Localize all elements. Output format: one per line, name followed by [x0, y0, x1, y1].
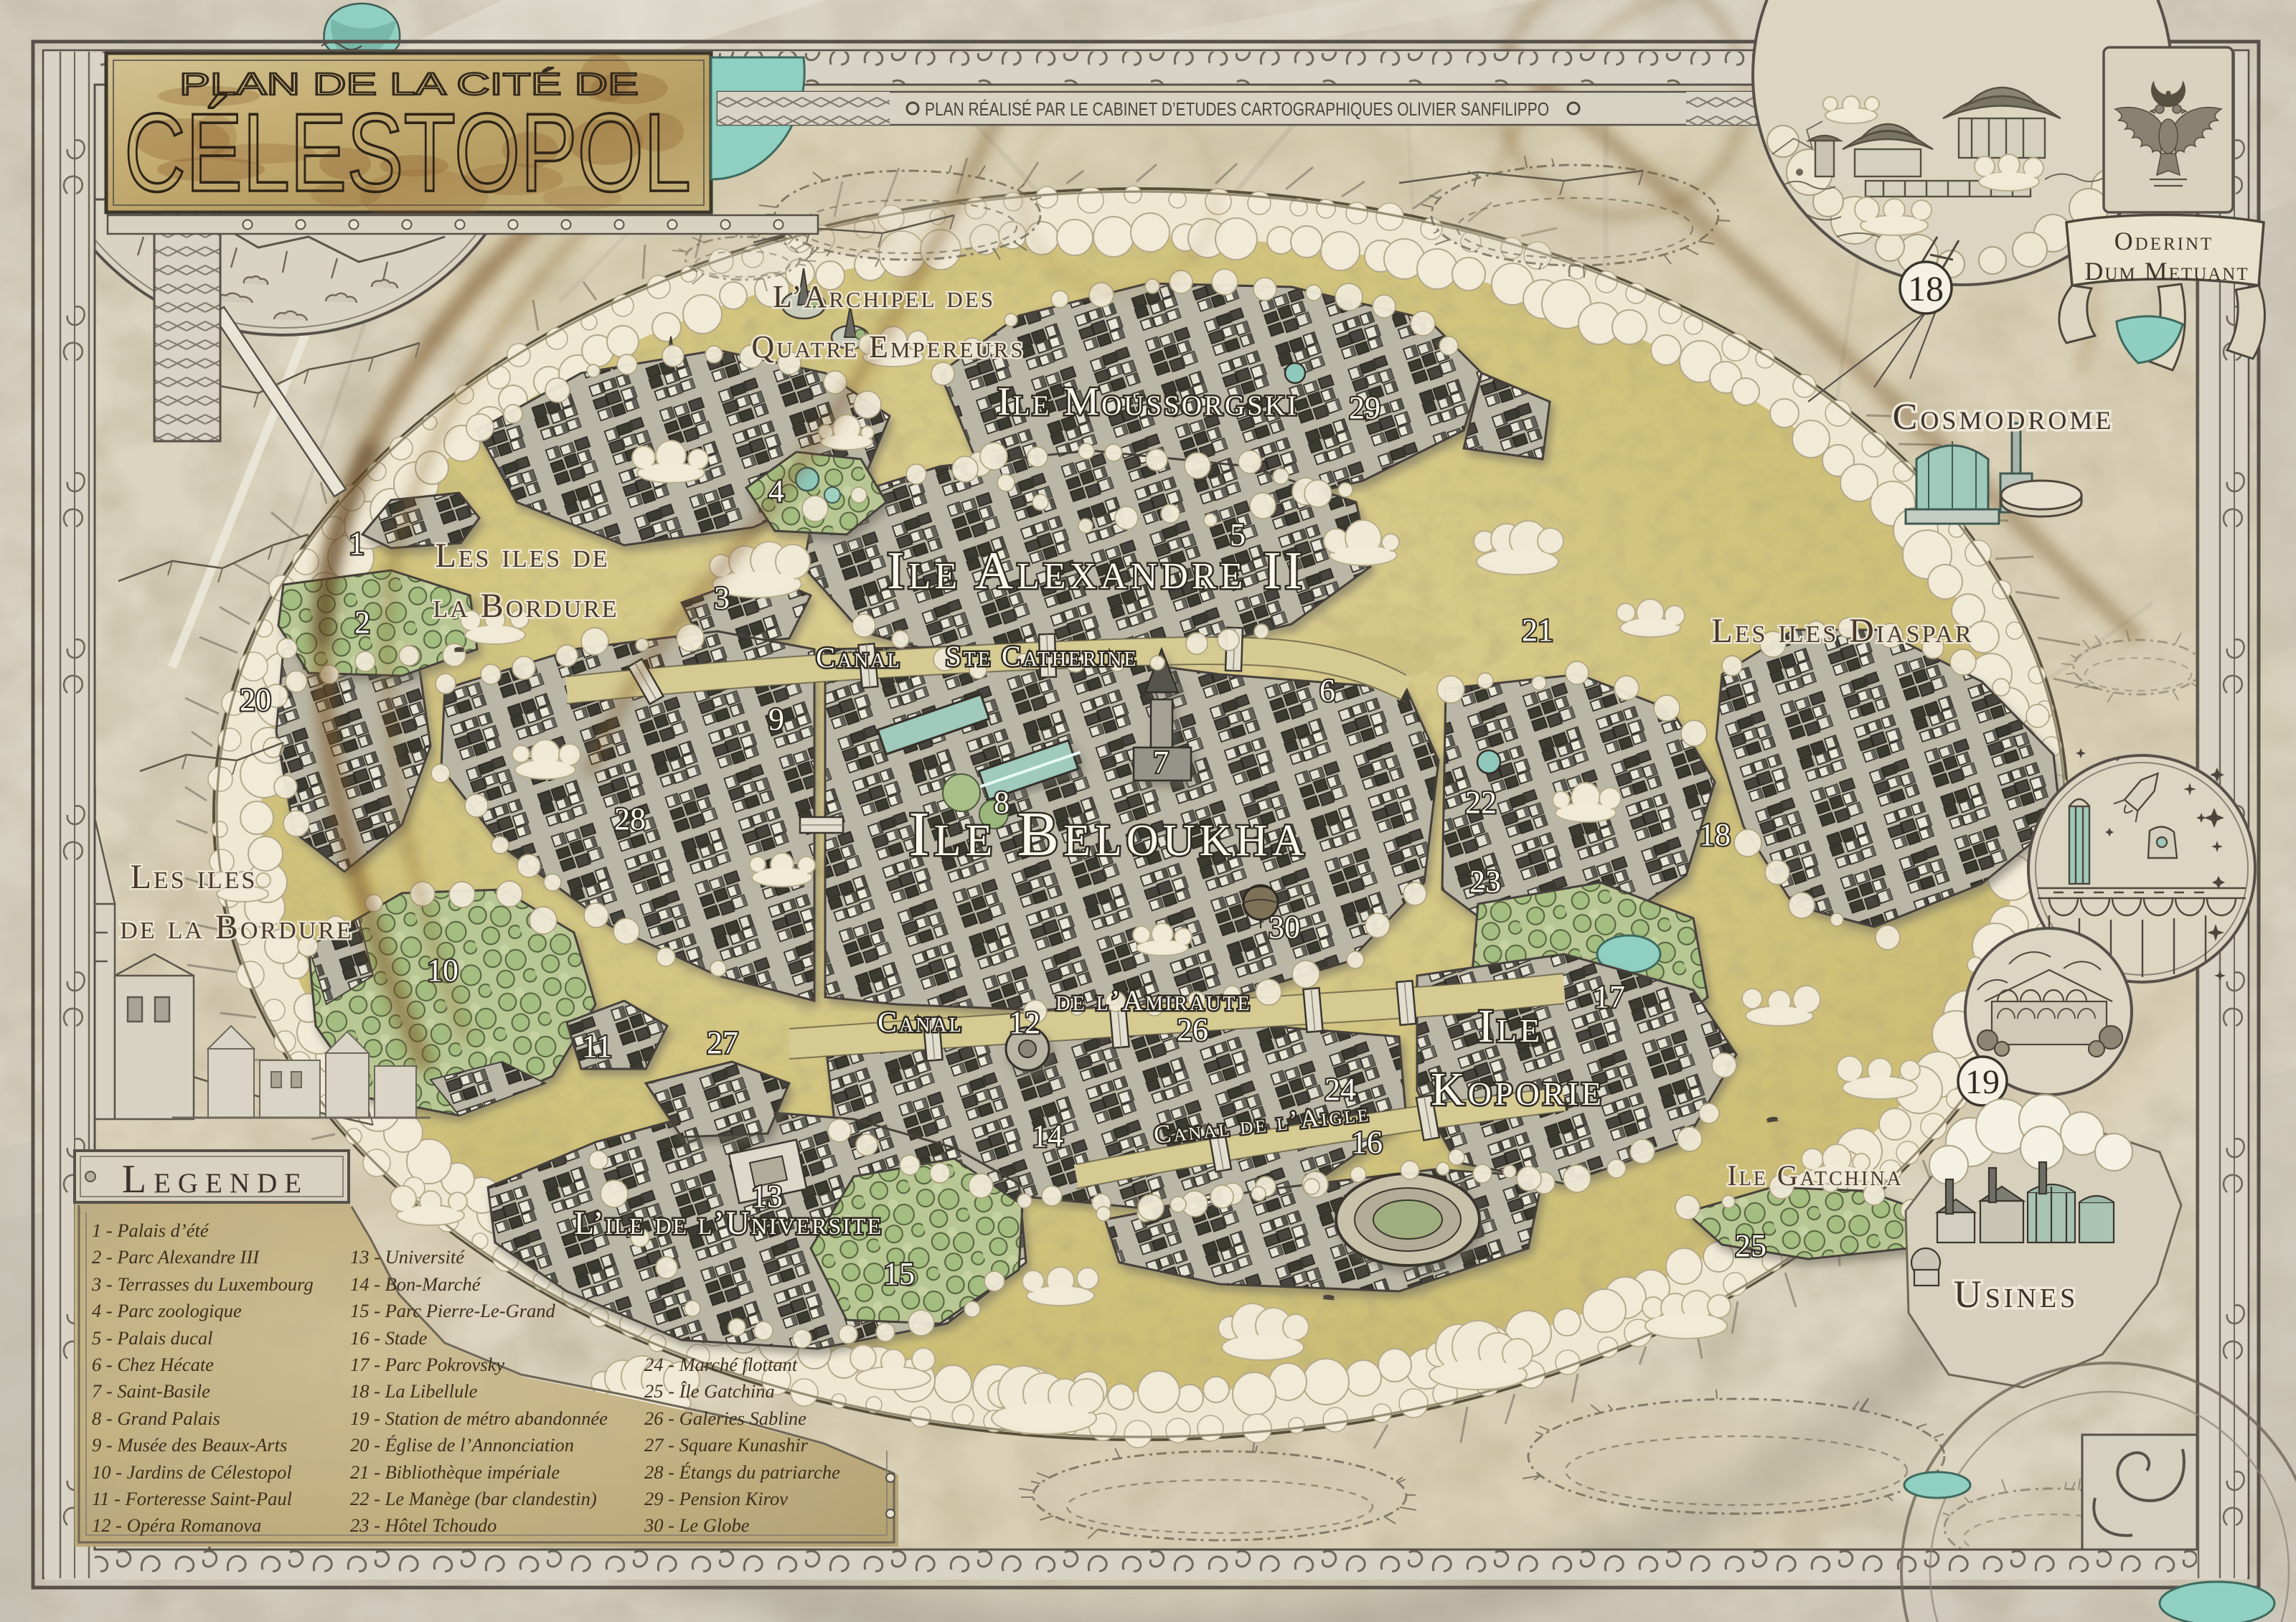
svg-text:Ile Moussorgski: Ile Moussorgski [997, 379, 1299, 424]
svg-text:15 - Parc Pierre-Le-Grand: 15 - Parc Pierre-Le-Grand [350, 1300, 556, 1321]
svg-text:19: 19 [1965, 1063, 2000, 1101]
svg-text:Les iles: Les iles [131, 858, 258, 896]
svg-text:Canal: Canal [816, 641, 901, 674]
svg-text:Ile Gatchina: Ile Gatchina [1727, 1159, 1903, 1192]
svg-text:2: 2 [354, 605, 370, 640]
svg-text:17 - Parc Pokrovsky: 17 - Parc Pokrovsky [350, 1354, 504, 1375]
svg-text:27 - Square Kunashir: 27 - Square Kunashir [644, 1434, 809, 1456]
svg-text:3: 3 [714, 580, 730, 616]
svg-text:9 - Musée des Beaux-Arts: 9 - Musée des Beaux-Arts [92, 1434, 287, 1456]
svg-text:23: 23 [1469, 864, 1501, 899]
svg-text:Ste Catherine: Ste Catherine [945, 640, 1138, 672]
svg-text:1: 1 [349, 526, 364, 561]
svg-text:CÉLESTOPOL: CÉLESTOPOL [124, 90, 691, 214]
svg-text:18: 18 [1908, 268, 1944, 308]
svg-text:L’Archipel des: L’Archipel des [773, 279, 995, 314]
svg-text:25 - Île Gatchina: 25 - Île Gatchina [644, 1380, 775, 1402]
svg-text:de la Bordure: de la Bordure [120, 908, 353, 946]
svg-text:7: 7 [1153, 745, 1169, 780]
svg-text:20 - Église de l’Annonciation: 20 - Église de l’Annonciation [350, 1434, 574, 1456]
svg-text:17: 17 [1594, 979, 1625, 1014]
svg-text:30: 30 [1269, 910, 1300, 945]
svg-text:Cosmodrome: Cosmodrome [1893, 397, 2114, 438]
svg-text:26 - Galeries Sabline: 26 - Galeries Sabline [644, 1408, 806, 1429]
svg-text:de l’Amiraute: de l’Amiraute [1055, 984, 1251, 1017]
svg-text:22 - Le Manège (bar clandestin: 22 - Le Manège (bar clandestin) [350, 1488, 597, 1509]
svg-text:27: 27 [707, 1025, 738, 1060]
svg-text:23 - Hôtel Tchoudo: 23 - Hôtel Tchoudo [350, 1514, 497, 1536]
svg-text:13 - Université: 13 - Université [350, 1246, 465, 1268]
svg-text:21: 21 [1522, 613, 1553, 648]
svg-text:25: 25 [1735, 1228, 1766, 1263]
svg-text:15: 15 [883, 1256, 915, 1291]
svg-text:Legende: Legende [122, 1157, 309, 1202]
svg-text:18 - La Libellule: 18 - La Libellule [350, 1380, 478, 1402]
svg-text:PLAN RÉALISÉ PAR LE CABINET D’: PLAN RÉALISÉ PAR LE CABINET D’ETUDES CAR… [925, 98, 1549, 120]
svg-text:1 - Palais d’été: 1 - Palais d’été [92, 1220, 210, 1241]
svg-text:24 - Marché flottant: 24 - Marché flottant [644, 1354, 798, 1375]
svg-text:10: 10 [427, 953, 458, 988]
svg-text:6 - Chez Hécate: 6 - Chez Hécate [92, 1354, 214, 1375]
svg-text:28: 28 [614, 801, 646, 836]
svg-text:Dum Metuant: Dum Metuant [2084, 257, 2249, 286]
svg-text:8 - Grand Palais: 8 - Grand Palais [92, 1408, 220, 1429]
svg-text:12: 12 [1009, 1005, 1040, 1040]
svg-text:8: 8 [994, 785, 1010, 820]
svg-text:11: 11 [582, 1029, 612, 1064]
svg-text:21 - Bibliothèque impériale: 21 - Bibliothèque impériale [350, 1461, 560, 1483]
svg-text:12 - Opéra Romanova: 12 - Opéra Romanova [92, 1514, 261, 1536]
svg-text:Quatre Empereurs: Quatre Empereurs [751, 329, 1025, 364]
svg-text:4: 4 [768, 473, 784, 509]
svg-text:Les iles de: Les iles de [435, 537, 609, 575]
svg-text:5 - Palais ducal: 5 - Palais ducal [92, 1327, 213, 1349]
svg-text:22: 22 [1465, 785, 1497, 820]
svg-text:11 - Forteresse Saint-Paul: 11 - Forteresse Saint-Paul [92, 1488, 292, 1509]
svg-text:Canal: Canal [878, 1006, 963, 1038]
svg-text:la Bordure: la Bordure [433, 587, 618, 625]
svg-text:16: 16 [1351, 1125, 1383, 1160]
svg-text:14: 14 [1032, 1118, 1063, 1154]
svg-text:7 - Saint-Basile: 7 - Saint-Basile [92, 1380, 210, 1402]
svg-text:20: 20 [240, 682, 271, 717]
svg-text:18: 18 [1699, 817, 1731, 852]
svg-text:2 - Parc Alexandre III: 2 - Parc Alexandre III [92, 1246, 260, 1268]
svg-text:Usines: Usines [1954, 1273, 2079, 1316]
svg-text:29: 29 [1349, 390, 1380, 425]
svg-text:13: 13 [751, 1179, 783, 1214]
svg-text:16 - Stade: 16 - Stade [350, 1327, 428, 1349]
svg-text:29 - Pension Kirov: 29 - Pension Kirov [644, 1488, 788, 1509]
svg-text:10 - Jardins de Célestopol: 10 - Jardins de Célestopol [92, 1461, 292, 1483]
svg-text:24: 24 [1325, 1072, 1356, 1107]
svg-text:Les iles Diaspar: Les iles Diaspar [1711, 612, 1973, 650]
svg-text:28 - Étangs du patriarche: 28 - Étangs du patriarche [644, 1461, 840, 1483]
svg-text:9: 9 [768, 702, 784, 737]
svg-text:19 - Station de métro abandonn: 19 - Station de métro abandonnée [350, 1408, 608, 1429]
svg-text:26: 26 [1177, 1012, 1208, 1047]
svg-text:Koporie: Koporie [1431, 1063, 1604, 1116]
svg-text:5: 5 [1230, 517, 1246, 552]
svg-text:Oderint: Oderint [2114, 227, 2214, 255]
svg-text:14 - Bon-Marché: 14 - Bon-Marché [350, 1273, 481, 1295]
svg-text:3 - Terrasses du Luxembourg: 3 - Terrasses du Luxembourg [91, 1273, 314, 1295]
svg-text:30 - Le Globe: 30 - Le Globe [644, 1514, 750, 1536]
svg-text:4 - Parc zoologique: 4 - Parc zoologique [92, 1300, 242, 1321]
svg-text:Ile: Ile [1478, 1000, 1543, 1052]
svg-text:L’ile de l’Universite: L’ile de l’Universite [574, 1204, 883, 1241]
svg-text:Ile Beloukha: Ile Beloukha [908, 800, 1308, 869]
svg-text:6: 6 [1319, 673, 1335, 708]
